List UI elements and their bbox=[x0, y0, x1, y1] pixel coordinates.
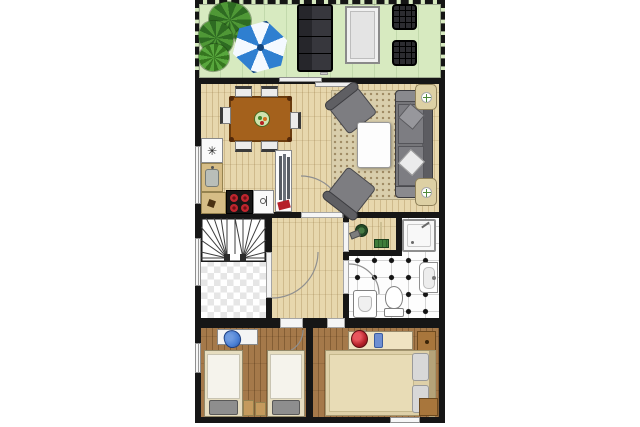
terrace-stool bbox=[392, 40, 417, 66]
wall-stairs-lower bbox=[266, 298, 272, 318]
bed-pillow bbox=[209, 400, 238, 415]
stair-landing-floor bbox=[201, 260, 266, 318]
table-knob bbox=[287, 96, 292, 101]
wall-right bbox=[439, 78, 445, 423]
double-nightstand bbox=[419, 398, 438, 416]
window-twin-bedroom bbox=[195, 343, 201, 373]
floor-plan: ✳ bbox=[195, 0, 445, 427]
double-duvet bbox=[329, 354, 414, 412]
wall-bedrooms-b bbox=[303, 318, 327, 328]
tap-icon bbox=[266, 196, 267, 206]
fruit bbox=[258, 116, 262, 120]
dining-chair bbox=[235, 141, 252, 152]
plant-stem bbox=[426, 94, 427, 102]
wall-stairs-upper bbox=[266, 218, 272, 252]
single-bed bbox=[267, 350, 305, 417]
terrace-lounge-sofa bbox=[297, 4, 333, 72]
door-living-hall bbox=[301, 212, 343, 218]
burner bbox=[241, 204, 249, 212]
dining-chair bbox=[261, 86, 278, 97]
dining-chair bbox=[290, 112, 301, 129]
winder-stairs bbox=[201, 218, 266, 262]
wall-bedrooms-c bbox=[345, 318, 439, 328]
wall-bedrooms-a bbox=[201, 318, 280, 328]
wardrobe-rail bbox=[287, 157, 290, 199]
table-knob bbox=[229, 137, 234, 142]
stove bbox=[226, 190, 253, 214]
door-hall-bathroom bbox=[343, 260, 349, 294]
terrace-stool bbox=[392, 4, 417, 30]
kitchen-faucet bbox=[211, 166, 214, 169]
coffee-table bbox=[357, 122, 391, 168]
kitchen-sink-counter bbox=[201, 163, 223, 192]
toilet-bowl bbox=[385, 286, 403, 309]
kitchen-corner-cabinet bbox=[201, 192, 226, 214]
twin-nightstand bbox=[255, 402, 266, 416]
dresser-red-item bbox=[351, 330, 368, 348]
side-table bbox=[415, 178, 437, 206]
bed-pillow bbox=[412, 353, 429, 381]
terrace-step bbox=[320, 72, 328, 75]
wardrobe-rail bbox=[283, 154, 286, 202]
knob bbox=[425, 340, 429, 344]
parasol-pole bbox=[257, 44, 264, 51]
bed-duvet bbox=[270, 354, 302, 399]
window-double-bedroom bbox=[390, 417, 420, 423]
kitchen-sink bbox=[205, 169, 219, 187]
washbasin bbox=[419, 262, 438, 293]
hallway-floor bbox=[272, 218, 343, 318]
opening-hall-niche bbox=[343, 222, 349, 252]
plant-stem bbox=[423, 97, 431, 98]
plant-stem bbox=[426, 189, 427, 197]
floor-plan-image: ✳ bbox=[0, 0, 640, 427]
washbasin-tap bbox=[432, 276, 436, 280]
dining-chair bbox=[220, 107, 231, 124]
kitchen-cabinet-symbol: ✳ bbox=[207, 145, 217, 157]
terrace-table-top bbox=[350, 11, 375, 59]
door-double-bedroom bbox=[327, 318, 345, 328]
wall-bath-3 bbox=[343, 294, 349, 318]
wardrobe-rail bbox=[279, 156, 282, 200]
wall-bedroom-divider bbox=[306, 328, 313, 417]
dining-chair bbox=[235, 86, 252, 97]
door-hall-stairs bbox=[266, 252, 272, 298]
toilet bbox=[383, 286, 405, 318]
toilet-tank bbox=[384, 308, 404, 317]
bed-duvet bbox=[207, 354, 240, 399]
twin-nightstand bbox=[243, 400, 254, 416]
bidet bbox=[353, 290, 377, 318]
kitchen-sink-cabinet bbox=[253, 190, 274, 214]
fruit-bowl bbox=[254, 111, 270, 127]
terrace-table bbox=[345, 6, 380, 64]
dining-table bbox=[229, 96, 292, 142]
plant-stem bbox=[423, 192, 431, 193]
shower bbox=[402, 219, 436, 252]
table-knob bbox=[229, 96, 234, 101]
kitchen-upper-cabinet: ✳ bbox=[201, 138, 223, 163]
burner bbox=[241, 194, 249, 202]
bed-pillow bbox=[272, 400, 300, 415]
shower-drain bbox=[411, 241, 414, 244]
burner bbox=[230, 204, 238, 212]
bidet-bowl bbox=[358, 296, 372, 312]
table-knob bbox=[287, 137, 292, 142]
side-table bbox=[415, 84, 437, 110]
single-bed bbox=[204, 350, 243, 417]
hall-wardrobe bbox=[275, 150, 292, 212]
broom-head bbox=[374, 239, 389, 248]
burner bbox=[230, 194, 238, 202]
dresser-blue-item bbox=[374, 333, 383, 348]
door-twin-bedroom bbox=[280, 318, 303, 328]
wall-niche-bottom bbox=[343, 250, 402, 256]
kitchen-utensil bbox=[207, 199, 216, 208]
wardrobe-red-item bbox=[277, 200, 291, 211]
